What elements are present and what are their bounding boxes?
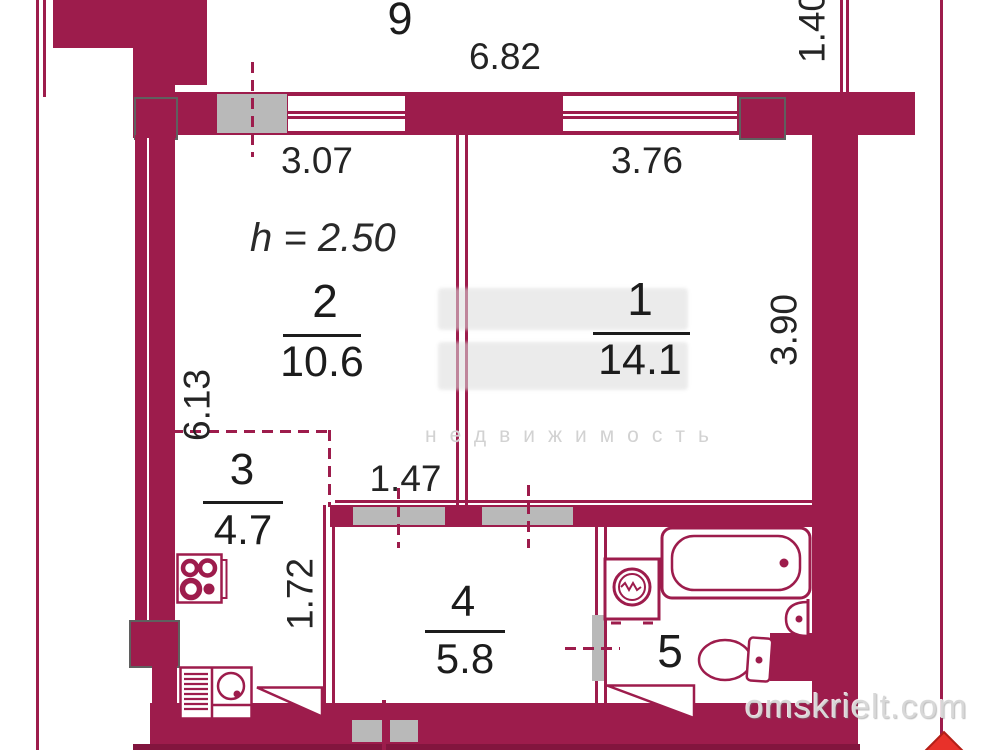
window-left xyxy=(288,96,405,131)
dim-balcony-depth: 1.40 xyxy=(794,0,831,63)
dim-kitchen-height: 1.72 xyxy=(282,558,319,630)
vent-shaft-left xyxy=(134,97,178,140)
room-3-area: 4.7 xyxy=(193,509,293,551)
hall-left-wall-line-b xyxy=(332,505,335,705)
agency-watermark-caption: недвижимость xyxy=(425,424,722,448)
kitchen-door-leaf-icon xyxy=(256,686,324,718)
boundary-line-left-2 xyxy=(43,0,46,97)
window-right xyxy=(563,96,737,131)
wall-bottom-shadow xyxy=(133,744,860,750)
bottom-opening-1 xyxy=(352,720,383,742)
boundary-line-right xyxy=(940,0,943,750)
boundary-line-left xyxy=(36,0,39,750)
washbasin-icon xyxy=(781,598,813,640)
hall-left-wall-line-a xyxy=(323,505,326,705)
dim-overall-top: 6.82 xyxy=(450,38,560,75)
room-2-fraction-line xyxy=(283,334,361,337)
vent-shaft-right xyxy=(739,97,786,140)
stove-icon xyxy=(176,553,228,605)
wall-right xyxy=(812,135,858,750)
dim-left-height: 6.13 xyxy=(179,369,216,441)
bath-duct-stub xyxy=(770,633,812,681)
room-1-area: 14.1 xyxy=(580,339,700,382)
room-4-number: 4 xyxy=(433,580,493,624)
room-1-fraction-line xyxy=(593,332,690,335)
wall-top-left-block xyxy=(53,0,207,48)
balcony-rail-line-2 xyxy=(846,0,849,95)
wall-left xyxy=(135,135,175,622)
balcony-rail-line-1 xyxy=(840,0,843,95)
toilet-icon xyxy=(695,636,775,684)
bath-door-axis-tick xyxy=(565,647,620,650)
ceiling-height-label: h = 2.50 xyxy=(250,218,396,258)
dim-room1-height: 3.90 xyxy=(766,294,803,366)
dim-door-width: 1.47 xyxy=(358,460,453,497)
kitchen-dashed-boundary-v xyxy=(328,430,331,507)
washing-machine-icon xyxy=(603,557,661,627)
room-3-number: 3 xyxy=(212,448,272,492)
bathtub-icon xyxy=(660,526,812,600)
mid-wall-top-line xyxy=(335,500,858,503)
room-4-area: 5.8 xyxy=(415,638,515,680)
red-marker-icon xyxy=(923,731,965,750)
site-watermark: omskrielt.com xyxy=(745,688,968,727)
floor-plan: недвижимость 9 6.82 1.40 3.07 3.76 h = 2… xyxy=(0,0,997,750)
kitchen-sink-icon xyxy=(179,666,253,720)
bottom-door-axis-tick xyxy=(382,700,386,750)
dim-window-right: 3.76 xyxy=(592,142,702,179)
bath-door-leaf-icon xyxy=(605,684,697,720)
balcony-number: 9 xyxy=(370,0,430,41)
room-2-area: 10.6 xyxy=(272,341,372,384)
wall-left-pillar xyxy=(129,620,180,668)
door-axis-tick-2 xyxy=(527,485,530,548)
room-1-number: 1 xyxy=(610,276,670,322)
balcony-door-axis-tick xyxy=(251,62,254,157)
room-4-fraction-line xyxy=(425,630,505,633)
room-3-fraction-line xyxy=(203,501,283,504)
wall-left-seam xyxy=(147,138,149,622)
room-2-number: 2 xyxy=(290,278,360,324)
bottom-opening-2 xyxy=(390,720,418,742)
room-5-number: 5 xyxy=(645,628,695,674)
dim-window-left: 3.07 xyxy=(262,142,372,179)
